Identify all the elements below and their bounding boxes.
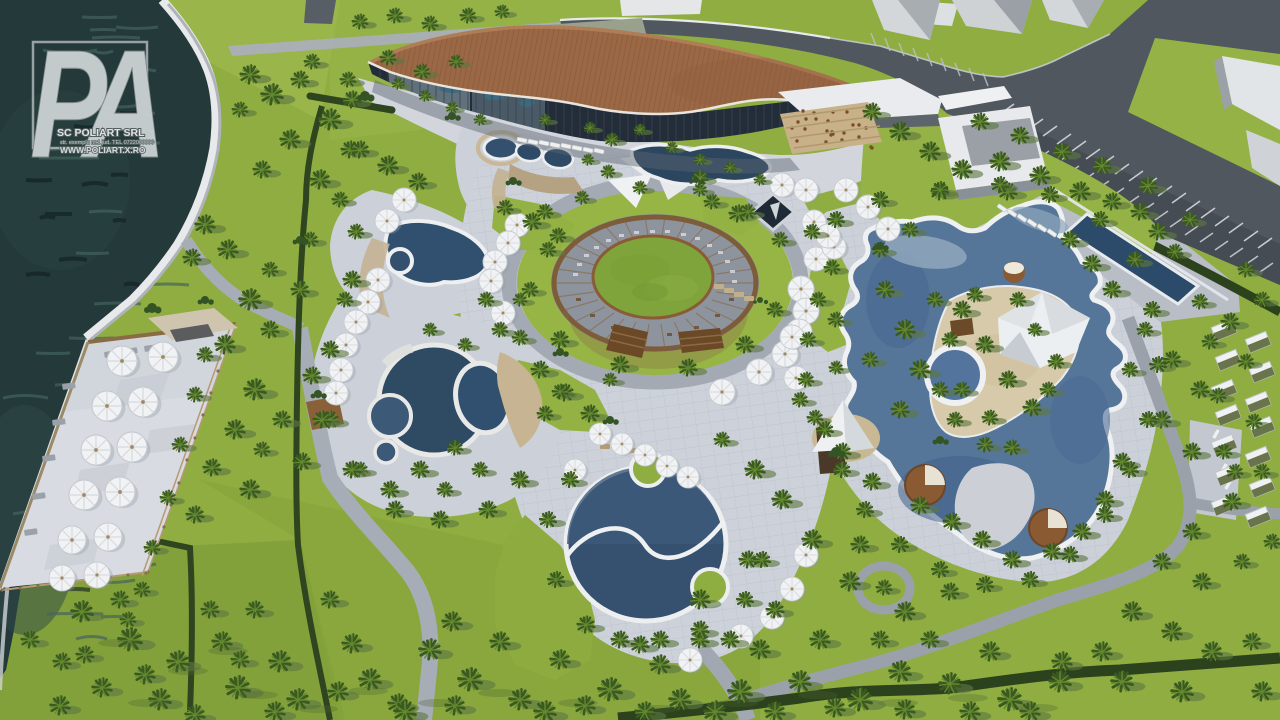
svg-text:PA: PA [30,18,158,190]
svg-text:WWW.POLIART.X.RO: WWW.POLIART.X.RO [60,145,146,155]
svg-text:SC POLIART SRL: SC POLIART SRL [57,127,145,139]
